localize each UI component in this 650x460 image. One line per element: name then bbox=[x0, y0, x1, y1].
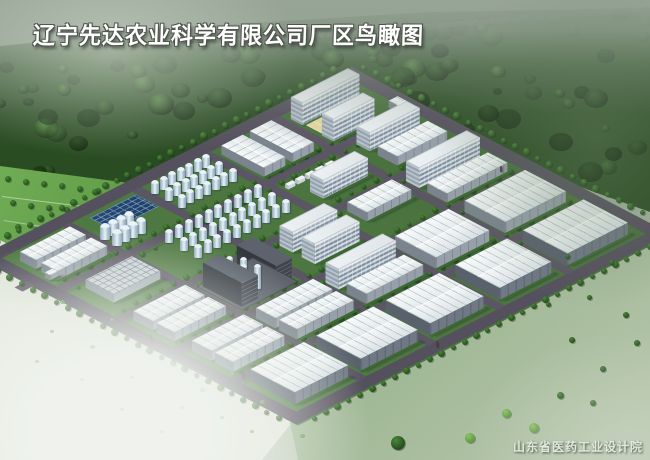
forest-clump bbox=[95, 100, 114, 115]
storage-tank bbox=[253, 214, 261, 228]
tree-icon bbox=[451, 345, 456, 350]
storage-tank bbox=[195, 185, 203, 199]
tree-icon bbox=[529, 423, 539, 433]
tree-icon bbox=[465, 433, 475, 443]
forest-clump bbox=[127, 131, 137, 139]
forest-clump bbox=[391, 67, 415, 86]
forest-clump bbox=[110, 60, 125, 72]
tree-icon bbox=[23, 179, 29, 185]
forest-clump bbox=[549, 133, 572, 152]
forest-clump bbox=[38, 109, 58, 125]
forest-clump bbox=[58, 65, 68, 73]
forest-clump bbox=[490, 66, 505, 78]
tree-icon bbox=[111, 329, 118, 336]
tree-icon bbox=[298, 83, 305, 90]
storage-tank bbox=[180, 237, 188, 251]
storage-tank bbox=[204, 239, 212, 253]
tree-icon bbox=[644, 6, 648, 10]
tree-icon bbox=[502, 409, 511, 418]
tree-icon bbox=[212, 129, 217, 134]
tree-icon bbox=[255, 106, 261, 112]
roof-ridge bbox=[338, 318, 396, 348]
tree-icon bbox=[587, 295, 592, 300]
forest-clump bbox=[601, 125, 610, 132]
tree-icon bbox=[312, 416, 317, 421]
tree-icon bbox=[77, 186, 83, 192]
forest-clump bbox=[57, 84, 72, 96]
forest-clump bbox=[567, 27, 580, 37]
tree-icon bbox=[546, 302, 551, 307]
forest-clump bbox=[197, 94, 208, 103]
forest-clump bbox=[67, 75, 80, 85]
tree-icon bbox=[559, 13, 563, 17]
tree-icon bbox=[373, 70, 379, 76]
tree-icon bbox=[407, 89, 413, 95]
tree-icon bbox=[565, 254, 570, 259]
forest-clump bbox=[493, 88, 502, 95]
tree-icon bbox=[159, 355, 164, 360]
forest-clump bbox=[207, 88, 231, 107]
roof-ridge bbox=[415, 219, 469, 247]
tree-icon bbox=[310, 79, 315, 84]
forest-clump bbox=[0, 62, 14, 74]
tree-icon bbox=[555, 292, 560, 297]
forest-clump bbox=[27, 83, 40, 93]
tree-icon bbox=[121, 308, 125, 312]
tree-icon bbox=[466, 120, 471, 125]
tree-icon bbox=[523, 148, 530, 155]
tree-icon bbox=[616, 197, 622, 203]
field-bush bbox=[300, 434, 305, 438]
forest-clump bbox=[133, 76, 155, 94]
tree-icon bbox=[485, 328, 490, 333]
forest-clump bbox=[322, 50, 344, 68]
forest-clump bbox=[153, 55, 176, 74]
tree-icon bbox=[276, 415, 282, 421]
forest-clump bbox=[562, 99, 574, 109]
storage-tank bbox=[223, 229, 231, 243]
tree-icon bbox=[477, 125, 483, 131]
design-institute-credit: 山东省医药工业设计院 bbox=[513, 438, 643, 455]
forest-clump bbox=[524, 74, 536, 84]
forest-clump bbox=[241, 68, 265, 87]
forest-clump bbox=[376, 54, 393, 67]
storage-tank bbox=[112, 229, 122, 246]
forest-clump bbox=[148, 94, 174, 115]
page-title: 辽宁先达农业科学有限公司厂区鸟瞰图 bbox=[33, 23, 425, 50]
forest-clump bbox=[628, 140, 647, 155]
forest-clump bbox=[597, 49, 614, 63]
tree-icon bbox=[627, 203, 634, 210]
tree-icon bbox=[609, 260, 614, 265]
roof-ridge bbox=[545, 211, 606, 242]
tree-icon bbox=[28, 203, 34, 209]
tree-icon bbox=[135, 342, 141, 348]
tree-icon bbox=[391, 436, 405, 450]
storage-tank bbox=[203, 181, 211, 195]
tree-icon bbox=[267, 188, 271, 192]
tree-icon bbox=[227, 192, 232, 197]
tree-icon bbox=[217, 384, 224, 391]
storage-tank bbox=[233, 224, 241, 238]
tree-icon bbox=[125, 243, 131, 249]
tree-icon bbox=[30, 287, 36, 293]
factory-campus-birdseye-rendering: 辽宁先达农业科学有限公司厂区鸟瞰图 山东省医药工业设计院 bbox=[0, 0, 650, 460]
tree-icon bbox=[318, 266, 324, 272]
tree-icon bbox=[601, 268, 607, 274]
tree-icon bbox=[135, 166, 142, 173]
tree-icon bbox=[92, 189, 98, 195]
tree-icon bbox=[82, 195, 87, 200]
storage-tank bbox=[100, 223, 110, 240]
tree-icon bbox=[592, 185, 599, 192]
forest-clump bbox=[0, 99, 6, 108]
roof-ridge bbox=[477, 250, 530, 277]
tree-icon bbox=[508, 314, 515, 321]
forest-clump bbox=[23, 98, 34, 107]
tree-icon bbox=[171, 281, 176, 286]
storage-tank bbox=[165, 229, 173, 243]
tree-icon bbox=[46, 205, 52, 211]
tree-icon bbox=[577, 279, 584, 286]
forest-clump bbox=[69, 136, 88, 151]
tree-icon bbox=[488, 130, 495, 137]
tree-icon bbox=[520, 310, 525, 315]
forest-clump bbox=[637, 32, 650, 43]
tree-icon bbox=[197, 269, 201, 273]
storage-tank bbox=[165, 187, 173, 201]
storage-tank bbox=[178, 194, 186, 208]
storage-tank bbox=[213, 234, 221, 248]
tree-icon bbox=[233, 116, 240, 123]
tree-icon bbox=[420, 215, 425, 220]
tree-icon bbox=[442, 107, 448, 113]
tree-icon bbox=[557, 392, 564, 399]
tree-icon bbox=[334, 403, 341, 410]
storage-tank bbox=[229, 168, 237, 182]
forest-clump bbox=[496, 109, 521, 129]
roof-ridge bbox=[407, 284, 461, 312]
tree-icon bbox=[190, 139, 196, 145]
tree-icon bbox=[27, 222, 33, 228]
storage-tank bbox=[220, 172, 228, 186]
tree-icon bbox=[54, 300, 59, 305]
storage-tank bbox=[282, 199, 290, 213]
tree-icon bbox=[139, 251, 145, 257]
storage-tank bbox=[272, 204, 280, 218]
tree-icon bbox=[501, 138, 506, 143]
tree-icon bbox=[387, 172, 391, 176]
storage-tank bbox=[262, 209, 270, 223]
tree-icon bbox=[183, 274, 189, 280]
tree-icon bbox=[49, 212, 54, 217]
tree-icon bbox=[593, 10, 597, 14]
tree-icon bbox=[381, 381, 386, 386]
tree-icon bbox=[610, 9, 614, 13]
forest-clump bbox=[173, 102, 195, 119]
tree-icon bbox=[394, 227, 400, 233]
tree-icon bbox=[189, 212, 194, 217]
tree-icon bbox=[512, 143, 518, 149]
forest-clump bbox=[605, 147, 623, 161]
forest-clump bbox=[638, 15, 650, 27]
tree-icon bbox=[153, 246, 157, 250]
field-bush bbox=[170, 362, 175, 366]
tree-icon bbox=[89, 318, 94, 323]
tree-icon bbox=[369, 385, 376, 392]
tree-icon bbox=[460, 210, 464, 214]
field-bush bbox=[90, 345, 95, 349]
tree-icon bbox=[416, 363, 421, 368]
tree-icon bbox=[438, 350, 445, 357]
tree-icon bbox=[306, 273, 311, 278]
forest-clump bbox=[525, 86, 543, 100]
forest-clump bbox=[171, 83, 190, 98]
tree-icon bbox=[151, 231, 156, 236]
storage-tank bbox=[186, 189, 194, 203]
field-bush bbox=[260, 400, 265, 404]
storage-tank bbox=[194, 244, 202, 258]
storage-tank bbox=[212, 176, 220, 190]
forest-clump bbox=[554, 89, 565, 98]
storage-tank bbox=[243, 219, 251, 233]
tree-icon bbox=[640, 210, 645, 215]
tree-icon bbox=[41, 181, 47, 187]
tree-icon bbox=[147, 162, 152, 167]
tree-icon bbox=[473, 332, 480, 339]
tree-icon bbox=[252, 402, 259, 409]
tree-icon bbox=[6, 274, 13, 281]
forest-clump bbox=[478, 105, 499, 122]
storage-tank bbox=[151, 180, 159, 194]
forest-clump bbox=[46, 124, 68, 141]
tree-icon bbox=[343, 149, 347, 153]
forest-clump bbox=[130, 65, 147, 79]
field-bush bbox=[60, 300, 65, 304]
tree-icon bbox=[329, 154, 335, 160]
tree-icon bbox=[384, 76, 391, 83]
tree-icon bbox=[70, 199, 77, 206]
field-bush bbox=[200, 388, 205, 392]
tree-icon bbox=[462, 339, 468, 345]
roof-ridge bbox=[272, 353, 326, 381]
forest-clump bbox=[584, 89, 608, 108]
